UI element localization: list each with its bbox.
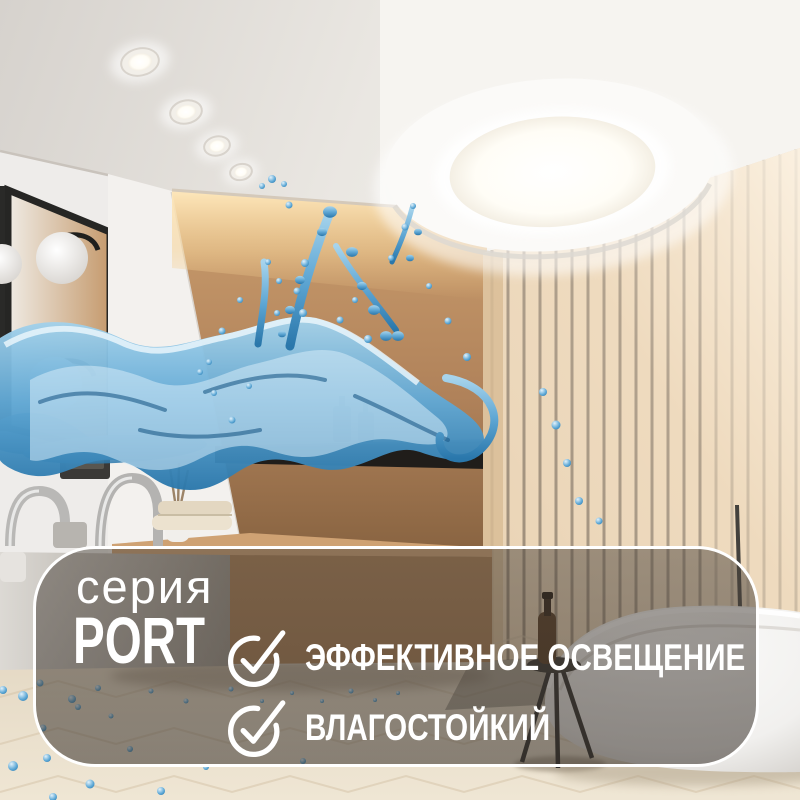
check-circle-icon [226, 697, 292, 759]
promo-image: серия PORT ЭФФЕКТИВНОЕ ОСВЕЩЕНИЕ ВЛАГОСТ… [0, 0, 800, 800]
feature-label-lighting: ЭФФЕКТИВНОЕ ОСВЕЩЕНИЕ [305, 625, 745, 691]
series-name: PORT [73, 607, 205, 673]
promo-panel: серия PORT ЭФФЕКТИВНОЕ ОСВЕЩЕНИЕ ВЛАГОСТ… [33, 546, 759, 767]
check-circle-icon [226, 627, 292, 689]
feature-row-lighting: ЭФФЕКТИВНОЕ ОСВЕЩЕНИЕ [226, 625, 800, 691]
feature-label-moisture: ВЛАГОСТОЙКИЙ [305, 695, 550, 761]
feature-row-moisture: ВЛАГОСТОЙКИЙ [226, 695, 611, 761]
